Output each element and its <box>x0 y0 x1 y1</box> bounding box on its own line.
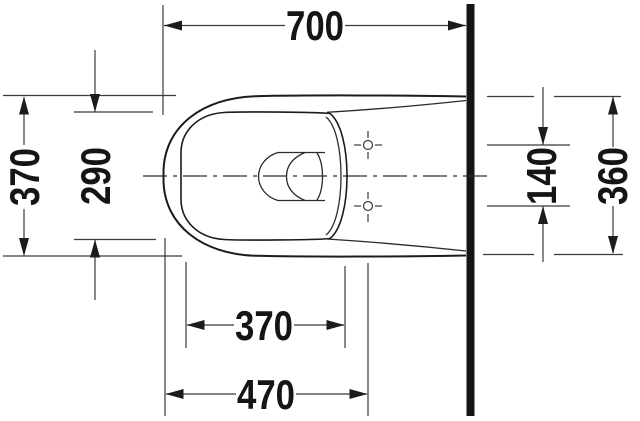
dimension-bowl-width: 290 <box>72 50 119 300</box>
arrowhead-up <box>608 97 618 115</box>
fixing-hole-top-circle <box>364 141 373 150</box>
arrowhead-up <box>19 97 29 115</box>
arrowhead-right <box>327 320 345 330</box>
dimension-front-to-fixing-holes: 470 <box>166 371 368 418</box>
arrowhead-down <box>90 94 100 112</box>
fixing-hole-top <box>354 131 382 159</box>
arrowhead-right <box>448 21 466 31</box>
dimension-label-140: 140 <box>518 147 565 205</box>
dimension-width-at-wall: 360 <box>589 97 636 255</box>
dimension-bowl-opening-length: 370 <box>187 302 345 349</box>
arrowhead-down <box>608 236 618 254</box>
arrowhead-right <box>350 389 368 399</box>
arrowhead-left <box>187 320 205 330</box>
fixing-hole-bottom-circle <box>364 202 373 211</box>
arrowhead-left <box>164 21 182 31</box>
arrowhead-up <box>538 206 548 224</box>
dimension-label-370-bottom: 370 <box>235 302 293 349</box>
dimension-label-290: 290 <box>72 147 119 205</box>
dimension-label-470: 470 <box>237 371 295 418</box>
arrowhead-left <box>166 389 184 399</box>
dimension-label-700: 700 <box>286 2 344 49</box>
extension-lines <box>3 5 623 416</box>
arrowhead-up <box>90 240 100 258</box>
fixing-hole-bottom <box>354 192 382 222</box>
dimension-overall-length: 700 <box>164 2 466 49</box>
dimension-label-370-left: 370 <box>1 148 48 206</box>
rim-shelf-line-top <box>327 101 466 113</box>
dimension-outer-width-front: 370 <box>1 97 48 257</box>
arrowhead-down <box>538 127 548 145</box>
technical-drawing-canvas: 700 370 290 140 360 370 <box>0 0 640 421</box>
dimension-label-360: 360 <box>589 147 636 205</box>
dimension-fixing-hole-spacing: 140 <box>518 87 565 262</box>
rim-shelf-line-bottom <box>327 239 466 251</box>
drawing-frame: 700 370 290 140 360 370 <box>0 0 640 421</box>
arrowhead-down <box>19 238 29 256</box>
wall-line <box>467 4 475 416</box>
